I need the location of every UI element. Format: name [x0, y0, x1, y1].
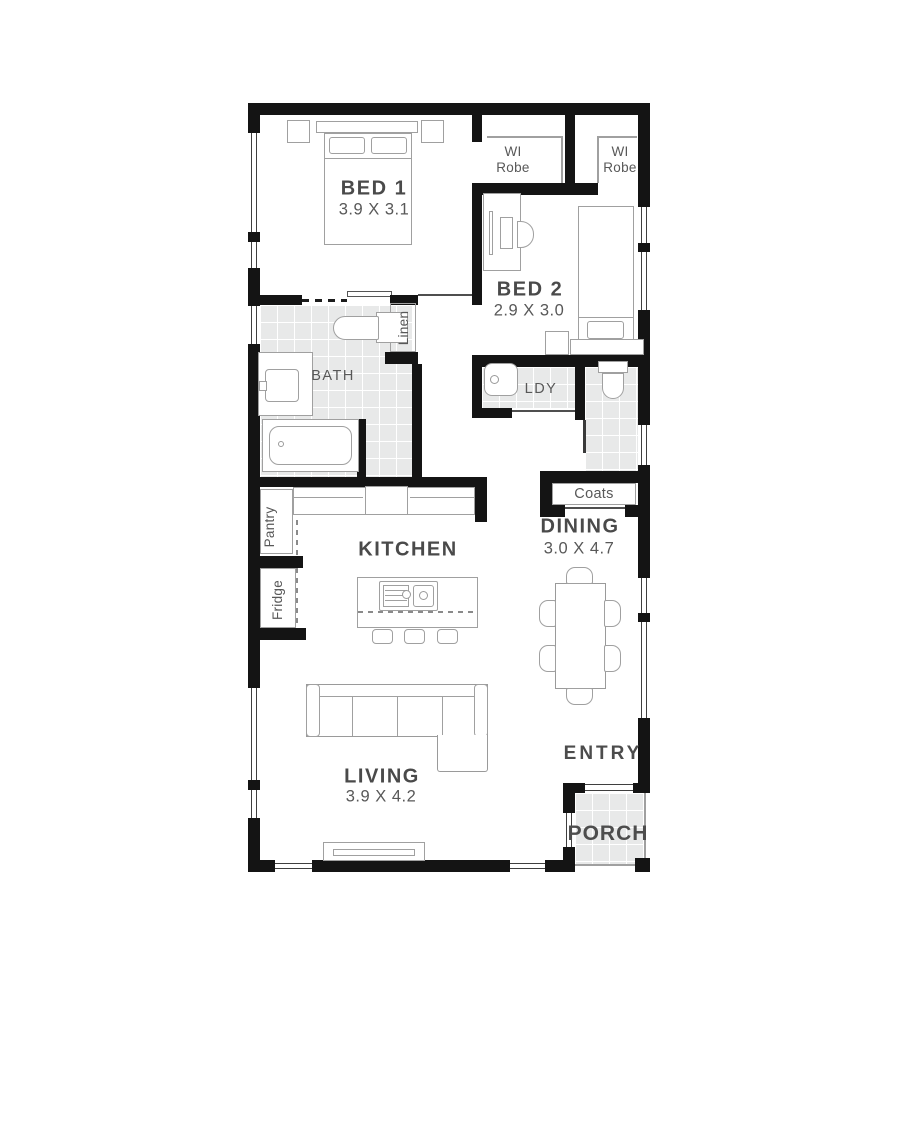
porch-corner-pier — [635, 858, 650, 872]
bed2-pillow — [587, 321, 624, 339]
vanity-basin — [265, 369, 299, 402]
label-living-name: LIVING — [344, 766, 420, 789]
window-living-south — [510, 860, 545, 872]
wall-bed1-bed2 — [472, 185, 482, 305]
kitchen-bench-line — [410, 497, 475, 498]
wall-kitchen-stub — [475, 477, 487, 522]
wall-bed1-south — [248, 295, 302, 305]
wall-fridge-south — [248, 628, 306, 640]
dining-chair — [539, 600, 556, 627]
fridge-front-dashed — [296, 568, 298, 628]
robe2-shelf — [597, 136, 637, 138]
bed2-sheet-line — [578, 317, 634, 318]
label-dining-dims: 3.0 X 4.7 — [544, 540, 615, 559]
dining-chair — [604, 645, 621, 672]
label-laundry: LDY — [525, 381, 558, 397]
bed1-pillow — [329, 137, 365, 154]
label-linen: Linen — [396, 311, 412, 346]
wc-cistern — [598, 361, 628, 373]
dining-table — [555, 583, 606, 689]
window-mullion — [638, 243, 650, 252]
window-living-south — [275, 860, 312, 872]
label-bed2-name: BED 2 — [497, 279, 563, 302]
floor-plan: BED 1 3.9 X 3.1 BED 2 2.9 X 3.0 WI Robe … — [0, 0, 912, 1141]
window-bed2 — [638, 207, 650, 310]
label-bed1-name: BED 1 — [341, 178, 407, 201]
exterior-wall-bottom — [312, 860, 510, 872]
bed1-headboard — [316, 121, 418, 133]
bed2-bench — [570, 339, 644, 355]
wall-laundry-south — [472, 408, 512, 418]
pantry-front-dashed — [296, 510, 298, 556]
label-bed2-dims: 2.9 X 3.0 — [494, 302, 565, 321]
sofa-seat-divider — [352, 696, 353, 736]
desk-monitor — [489, 211, 493, 255]
label-wirobe2-line1: WI — [611, 144, 628, 159]
wall-coats-top — [540, 471, 650, 483]
label-wirobe2: WI Robe — [603, 144, 636, 176]
exterior-wall-right — [638, 310, 650, 425]
label-bed1-dims: 3.9 X 3.1 — [339, 201, 410, 220]
label-pantry: Pantry — [262, 507, 278, 548]
bathtub-drain — [278, 441, 284, 447]
wall-linen-bottom — [385, 352, 418, 364]
stool — [437, 629, 458, 644]
front-door-stub — [563, 783, 585, 793]
toilet-bowl — [333, 316, 379, 340]
sofa-armrest — [474, 684, 488, 737]
dining-chair — [604, 600, 621, 627]
label-wirobe1: WI Robe — [496, 144, 529, 176]
label-fridge: Fridge — [270, 580, 286, 620]
label-bath: BATH — [311, 368, 355, 384]
stool — [404, 629, 425, 644]
dining-chair — [566, 688, 593, 705]
sofa-armrest — [306, 684, 320, 737]
label-living-dims: 3.9 X 4.2 — [346, 788, 417, 807]
exterior-wall-right — [638, 103, 650, 207]
exterior-wall-left — [248, 103, 260, 133]
sofa-seat-divider — [397, 696, 398, 736]
sofa-seat-divider — [442, 696, 443, 736]
robe1-shelf — [487, 136, 563, 138]
sink-tap — [402, 590, 411, 599]
kitchen-bench-line — [293, 497, 363, 498]
bed1-sheet-line — [324, 158, 412, 159]
window-mullion — [638, 613, 650, 622]
front-door-stub — [633, 783, 650, 793]
label-coats: Coats — [574, 486, 613, 502]
porch-edge-south — [575, 864, 635, 866]
label-dining-name: DINING — [541, 516, 620, 539]
front-door-threshold — [585, 784, 633, 791]
sink-drainer-line — [385, 600, 407, 601]
vanity-tap — [259, 381, 267, 391]
label-porch: PORCH — [568, 822, 649, 846]
desk-chair — [517, 221, 534, 248]
wall-bed1-robe1 — [472, 115, 482, 142]
label-entry: ENTRY — [564, 743, 643, 765]
bed2-side-table — [545, 331, 569, 355]
sink-drain — [419, 591, 428, 600]
sliding-door-leaf — [347, 291, 392, 297]
exterior-wall-bottom — [248, 860, 275, 872]
label-wirobe2-line2: Robe — [603, 160, 636, 175]
island-overhang-dashed — [358, 611, 477, 613]
wall-porch-west — [563, 847, 575, 872]
sofa-chaise — [437, 735, 488, 772]
laundry-tub-drain — [490, 375, 499, 384]
laundry-opening-rail — [512, 410, 582, 412]
window-bath — [248, 306, 260, 344]
window-bed1 — [248, 133, 260, 268]
wall-pantry-fridge — [248, 556, 303, 568]
window-wc — [638, 425, 650, 465]
wc-door-leaf — [583, 420, 586, 453]
window-dining — [638, 578, 650, 718]
coats-front-rail — [565, 507, 625, 509]
wall-laundry-wc — [575, 367, 585, 420]
robe1-shelf — [561, 136, 563, 183]
dining-chair — [539, 645, 556, 672]
bed1-pillow — [371, 137, 407, 154]
window-mullion — [248, 780, 260, 790]
label-wirobe1-line2: Robe — [496, 160, 529, 175]
stool — [372, 629, 393, 644]
hall-opening-header — [418, 294, 472, 296]
window-mullion — [248, 232, 260, 242]
wc-bowl — [602, 373, 624, 399]
exterior-wall-top — [248, 103, 650, 115]
bed1-side-table — [287, 120, 310, 143]
bed1-side-table — [421, 120, 444, 143]
dining-chair — [566, 567, 593, 584]
cavity-slider-track — [302, 299, 347, 302]
cooktop — [365, 486, 408, 515]
tv — [333, 849, 415, 856]
wall-coats-bottom — [625, 505, 650, 517]
label-kitchen: KITCHEN — [358, 539, 457, 562]
label-wirobe1-line1: WI — [504, 144, 521, 159]
window-living — [248, 688, 260, 818]
wall-bath-east — [412, 364, 422, 477]
robe2-shelf — [597, 136, 599, 183]
desk-screen — [500, 217, 513, 249]
wall-between-robes — [565, 115, 575, 183]
